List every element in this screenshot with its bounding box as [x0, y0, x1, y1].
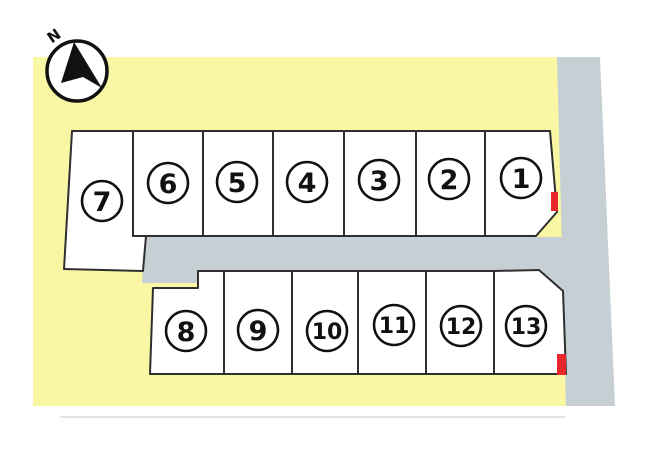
- lot-10-number: 10: [312, 320, 343, 345]
- lot-13-red-marker: [557, 354, 566, 375]
- lot-2-number: 2: [440, 165, 459, 196]
- lot-1-red-marker: [551, 192, 558, 211]
- lot-12-number: 12: [446, 315, 477, 340]
- lot-1-number: 1: [512, 164, 531, 195]
- lot-5-number: 5: [228, 168, 247, 199]
- lot-3-number: 3: [370, 166, 389, 197]
- lot-4-number: 4: [298, 168, 317, 199]
- lot-8-number: 8: [177, 317, 196, 348]
- site-plan: 1 2 3 4 5 6 7 8 9 10 11 12 13 N: [0, 0, 652, 460]
- lot-6-number: 6: [159, 169, 178, 200]
- lot-9-number: 9: [249, 316, 268, 347]
- site-plan-page: 1 2 3 4 5 6 7 8 9 10 11 12 13 N: [0, 0, 652, 460]
- lot-7-number: 7: [93, 187, 112, 218]
- lot-13-number: 13: [511, 315, 542, 340]
- lot-11-number: 11: [379, 314, 410, 339]
